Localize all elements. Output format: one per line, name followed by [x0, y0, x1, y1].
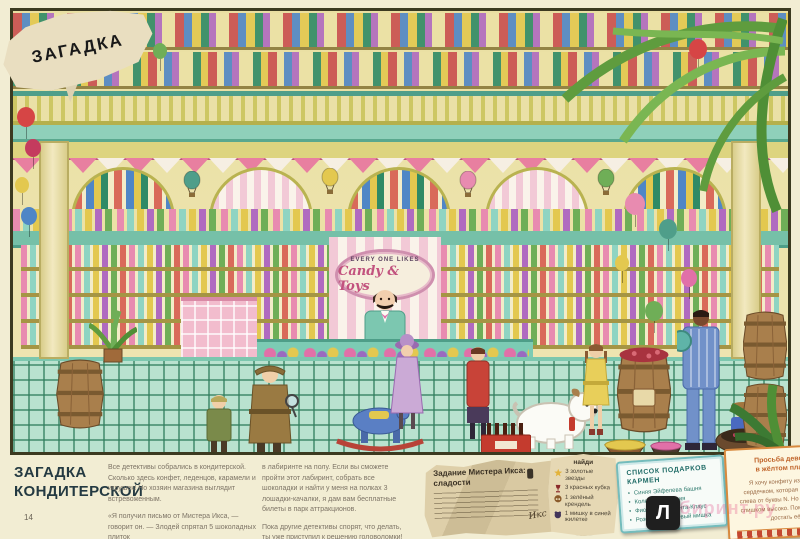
- detective-figure: [245, 359, 299, 453]
- balloon: [15, 177, 29, 193]
- girl-request-card: Просьба девочки в жёлтом платье Я хочу к…: [724, 443, 800, 539]
- striped-border: [737, 525, 800, 538]
- candy-bowl: [603, 439, 647, 455]
- girl-card-title: Просьба девочки в жёлтом платье: [733, 452, 800, 476]
- column: [39, 141, 69, 359]
- candy-pot: [649, 441, 683, 455]
- paragraph: Все детективы собрались в кондитерской. …: [108, 463, 256, 505]
- balloon: [659, 219, 677, 239]
- carmen-card-title: СПИСОК ПОДАРКОВ КАРМЕН: [626, 463, 715, 487]
- woman-figure: [387, 333, 427, 437]
- star-icon: [554, 469, 562, 477]
- balloon: [17, 107, 35, 127]
- palm-fronds: [553, 11, 787, 216]
- paragraph: «Я получил письмо от Мистера Икса, — гов…: [108, 512, 256, 539]
- bear-icon: [554, 510, 562, 518]
- palm-plant: [729, 377, 787, 455]
- balloon: [645, 301, 663, 321]
- list-item: 1 мишку в синей жилетке: [554, 510, 612, 524]
- balloon: [25, 139, 41, 157]
- paragraph: в лабиринте на полу. Если вы сможете про…: [262, 463, 410, 516]
- list-item: 1 зелёный крендель: [554, 495, 612, 509]
- handwriting-lines: [434, 490, 539, 520]
- list-item: 3 золотые звезды: [554, 469, 612, 483]
- goblet-icon: [554, 485, 562, 493]
- potted-palm: [89, 303, 137, 363]
- find-list-title: найди: [554, 459, 612, 467]
- balloon: [681, 269, 697, 287]
- candy-barrel: [617, 345, 671, 433]
- mister-x-note: Задание Мистера Икса: сладости Икс: [423, 458, 562, 539]
- child-figure: [199, 391, 239, 453]
- paragraph: Пока другие детективы спорят, что делать…: [262, 523, 410, 539]
- balloon: [21, 207, 37, 225]
- list-item: 3 красных кубка: [554, 485, 612, 494]
- lantern-icon: [527, 469, 533, 479]
- candy-shop-illustration: EVERY ONE LIKES Candy & Toys: [10, 8, 791, 455]
- riddle-label-text: ЗАГАДКА: [30, 30, 125, 67]
- page-number: 14: [24, 513, 33, 522]
- bottle-crate: [481, 423, 531, 455]
- shop-sign-tagline: EVERY ONE LIKES: [350, 257, 419, 263]
- find-list-note: найди 3 золотые звезды 3 красных кубка 1…: [548, 454, 619, 537]
- balloon: [615, 255, 629, 271]
- hot-air-balloon-toy: [459, 171, 477, 198]
- labirint-logo: Л: [646, 496, 680, 530]
- pretzel-icon: [554, 495, 562, 503]
- signature: Икс: [528, 509, 548, 522]
- story-column-2: в лабиринте на полу. Если вы сможете про…: [262, 463, 410, 539]
- story-column-1: Все детективы собрались в кондитерской. …: [108, 463, 256, 539]
- barrel: [55, 359, 105, 429]
- hot-air-balloon-toy: [321, 168, 339, 195]
- hot-air-balloon-toy: [183, 171, 201, 198]
- girl-yellow-figure: [579, 341, 613, 445]
- balloon: [153, 43, 167, 59]
- pink-display-case: [181, 297, 257, 363]
- book-page: EVERY ONE LIKES Candy & Toys: [0, 0, 800, 539]
